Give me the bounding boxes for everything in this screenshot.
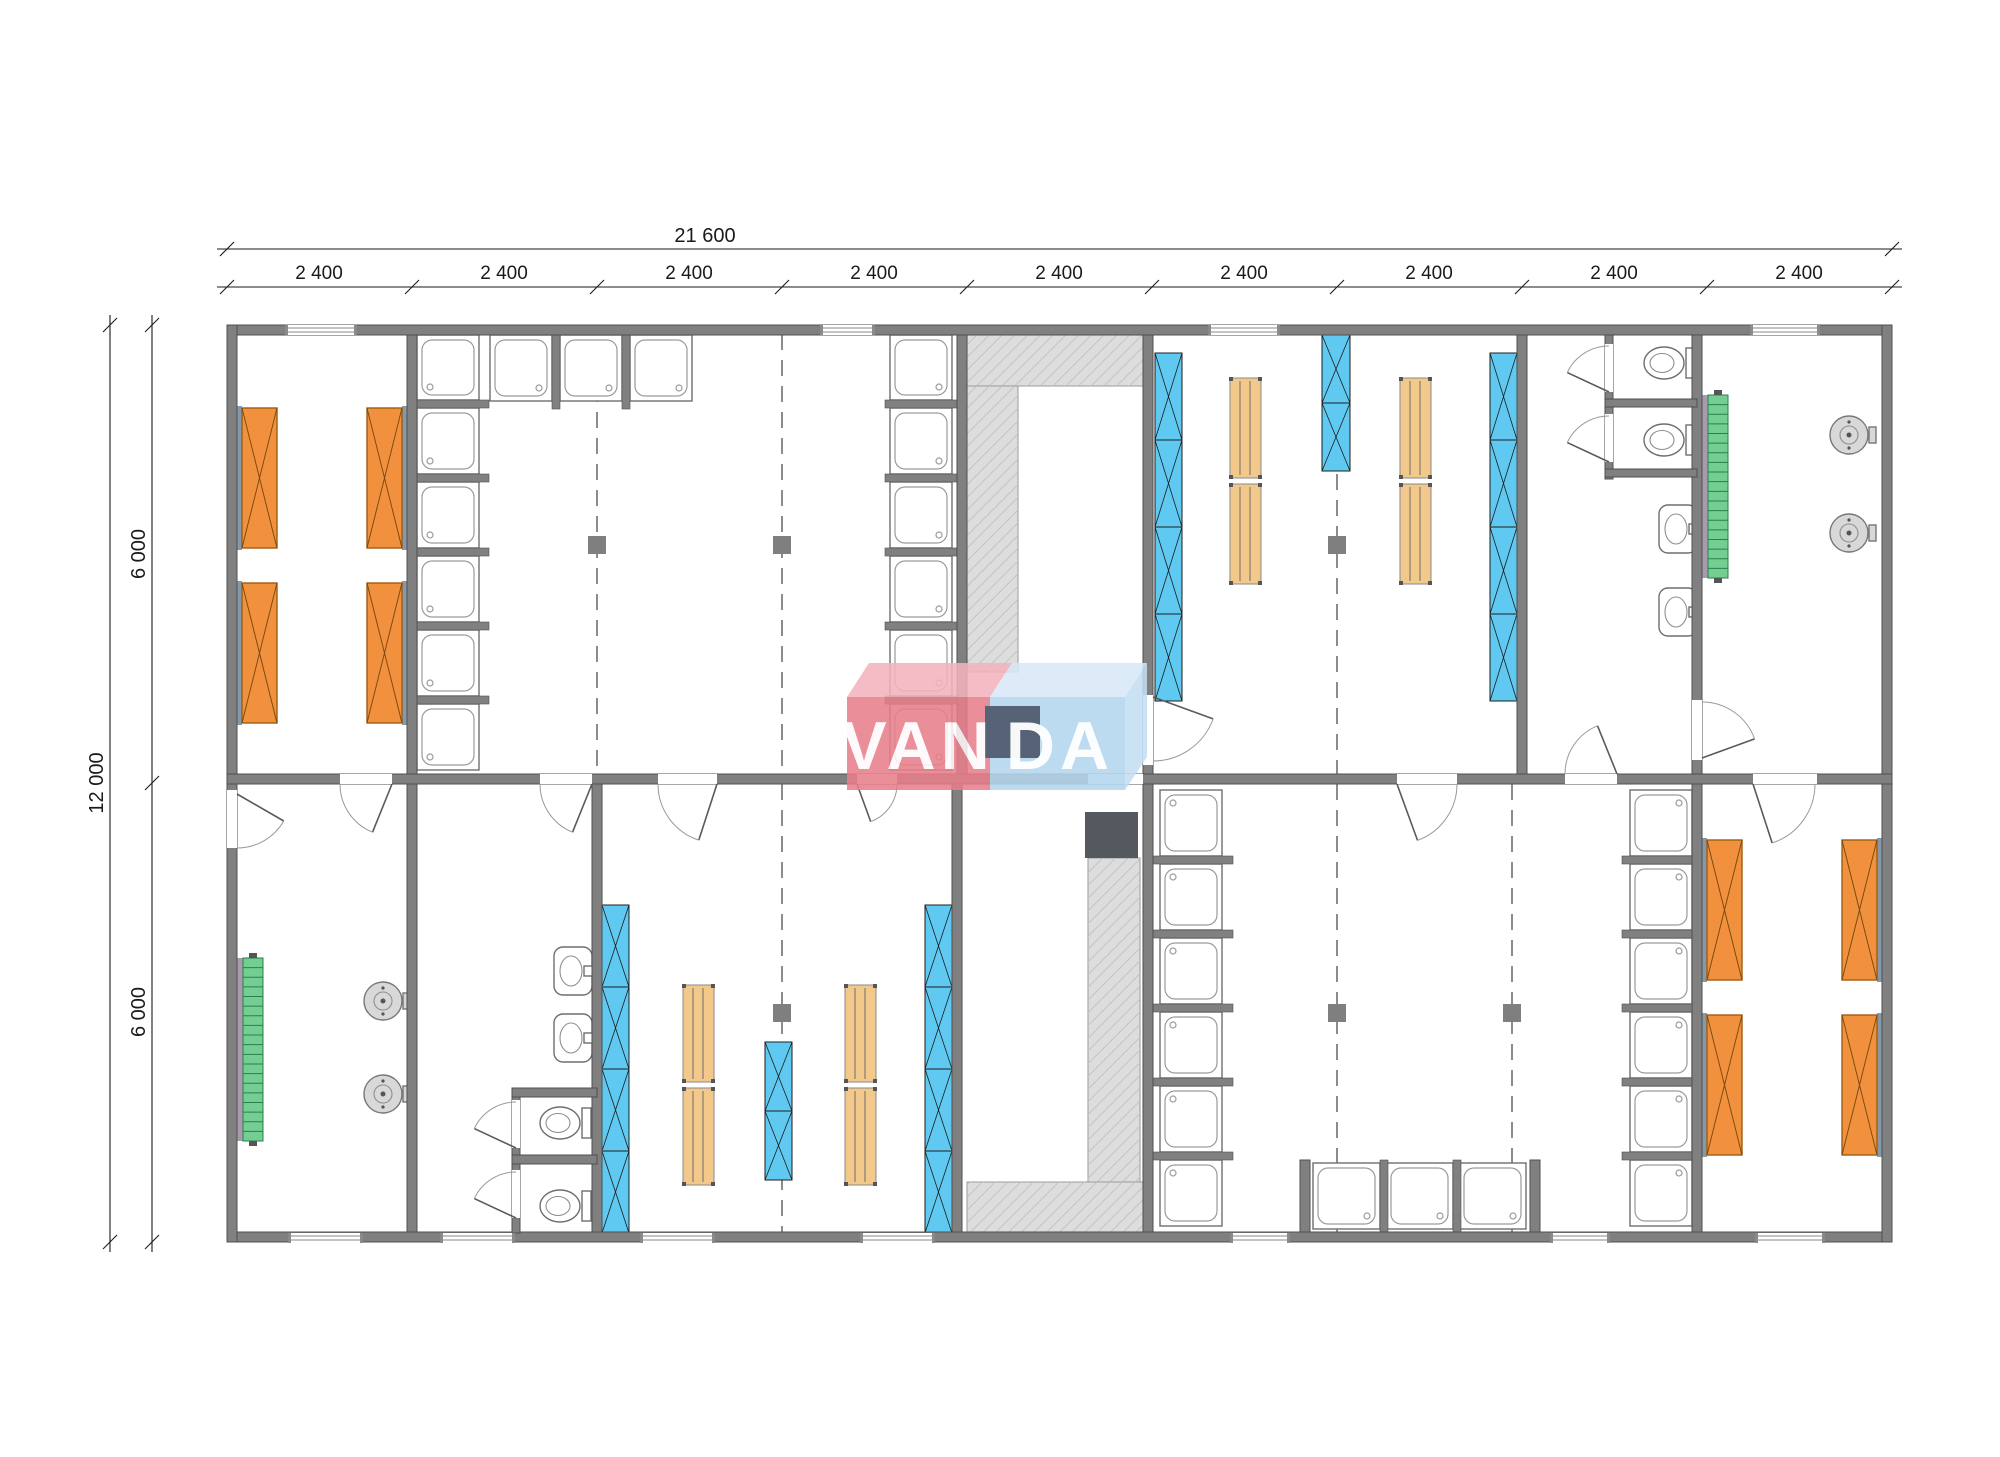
- window-icon: [288, 1233, 363, 1243]
- window-icon: [1208, 325, 1280, 335]
- window-gap: [440, 1233, 515, 1243]
- shower-stall-icon: [417, 482, 479, 548]
- wall-segment: [1605, 469, 1697, 477]
- door-icon: [474, 1172, 516, 1218]
- wall-segment: [1517, 335, 1527, 774]
- window-jamb: [1277, 325, 1280, 335]
- window-jamb: [820, 325, 823, 335]
- shower-stall-icon: [1630, 1012, 1692, 1078]
- washer-screw: [1847, 446, 1850, 449]
- shower-outline: [890, 408, 952, 474]
- toilet-icon: [540, 1190, 591, 1222]
- window-jamb: [285, 325, 288, 335]
- dimension-label: 2 400: [1220, 263, 1268, 284]
- wall-segment: [592, 784, 602, 1232]
- stall-divider: [1622, 856, 1702, 864]
- stall-divider: [1622, 930, 1702, 938]
- stall-divider: [1380, 1160, 1388, 1233]
- bench-foot: [711, 1182, 715, 1186]
- door-icon: [1397, 784, 1457, 840]
- bench-foot: [873, 1182, 877, 1186]
- door-swing-arc: [1153, 719, 1213, 761]
- dimension-label: 6 000: [128, 987, 150, 1037]
- stall-divider: [1622, 1152, 1702, 1160]
- stair-run: [1708, 395, 1728, 578]
- bench-foot: [1428, 581, 1432, 585]
- washer-screw: [381, 986, 384, 989]
- logo-text-van: VAN: [841, 708, 995, 784]
- dimension-label: 2 400: [1775, 263, 1823, 284]
- window-gap: [1208, 325, 1280, 335]
- window-icon: [860, 1233, 935, 1243]
- locker-icon: [1155, 440, 1182, 527]
- dimension-label: 6 000: [128, 529, 150, 579]
- locker-icon: [1490, 440, 1517, 527]
- shower-stall-icon: [890, 556, 952, 622]
- bench-outline: [1400, 484, 1431, 584]
- dimension-label: 12 000: [86, 752, 108, 813]
- washer-screw: [1847, 420, 1850, 423]
- shower-stall-icon: [1160, 864, 1222, 930]
- washer-center: [1847, 531, 1852, 536]
- stair-rail: [1702, 395, 1708, 578]
- column-marker: [773, 536, 791, 554]
- door-opening: [512, 1170, 520, 1218]
- shower-stall-icon: [630, 335, 692, 401]
- wall-segment: [952, 784, 962, 1232]
- toilet-icon: [1644, 347, 1695, 379]
- shower-stall-icon: [417, 408, 479, 474]
- logo-top-face-red: [847, 663, 1012, 697]
- stair-cap: [249, 1141, 257, 1146]
- shower-stall-icon: [1630, 864, 1692, 930]
- shower-outline: [890, 335, 952, 400]
- stairs-icon: [237, 953, 263, 1146]
- shower-outline: [490, 335, 552, 401]
- washer-screw: [381, 1105, 384, 1108]
- shower-outline: [1160, 1160, 1222, 1226]
- window-jamb: [860, 1233, 863, 1243]
- washer-hinge: [1869, 525, 1876, 541]
- window-icon: [1550, 1233, 1610, 1243]
- window-gap: [860, 1233, 935, 1243]
- dimension-label: 2 400: [850, 263, 898, 284]
- door-leaf: [573, 784, 592, 832]
- column-marker: [588, 536, 606, 554]
- column-marker: [1328, 1004, 1346, 1022]
- door-leaf: [1397, 784, 1418, 840]
- shower-stall-icon: [417, 556, 479, 622]
- bench-icon: [1229, 377, 1262, 479]
- window-jamb: [1817, 325, 1820, 335]
- washing-machine-icon: [364, 1075, 410, 1113]
- stairs-icon: [1702, 390, 1728, 583]
- door-opening: [1397, 774, 1457, 784]
- bench-foot: [844, 1087, 848, 1091]
- washer-screw: [381, 1079, 384, 1082]
- bench-foot: [1258, 483, 1262, 487]
- locker-icon: [1490, 353, 1517, 440]
- shower-outline: [1630, 1086, 1692, 1152]
- bench-foot: [1399, 483, 1403, 487]
- stall-divider: [885, 474, 967, 482]
- window-icon: [640, 1233, 715, 1243]
- window-jamb: [1287, 1233, 1290, 1243]
- stall-divider: [407, 622, 489, 630]
- door-opening: [512, 1100, 520, 1148]
- door-swing-arc: [658, 784, 699, 840]
- wall-segment: [1692, 784, 1702, 1232]
- shower-outline: [417, 556, 479, 622]
- bed-backing-strip: [237, 406, 242, 550]
- window-jamb: [1550, 1233, 1553, 1243]
- bed-backing-strip: [1702, 1013, 1707, 1157]
- logo-top-face-blue: [990, 663, 1147, 697]
- bench-foot: [873, 984, 877, 988]
- bench-icon: [844, 984, 877, 1083]
- corridor-hatch-pattern: [967, 1182, 1143, 1232]
- door-leaf: [1567, 373, 1609, 392]
- wall-segment: [1530, 1160, 1540, 1232]
- door-swing-arc: [474, 1172, 516, 1199]
- dimension-label: 21 600: [674, 225, 735, 247]
- door-swing-arc: [1567, 346, 1609, 373]
- door-leaf: [1753, 784, 1772, 843]
- shower-outline: [1630, 790, 1692, 856]
- washing-machine-icon: [364, 982, 410, 1020]
- bench-foot: [1428, 483, 1432, 487]
- window-jamb: [932, 1233, 935, 1243]
- window-icon: [820, 325, 875, 335]
- door-leaf: [373, 784, 392, 832]
- bench-foot: [1399, 377, 1403, 381]
- door-swing-arc: [237, 821, 284, 848]
- door-swing-arc: [1567, 416, 1609, 443]
- corridor-hatch-pattern: [967, 386, 1018, 672]
- window-jamb: [1755, 1233, 1758, 1243]
- toilet-tank: [582, 1191, 591, 1221]
- stall-divider: [622, 335, 630, 409]
- shower-outline: [1160, 790, 1222, 856]
- bench-foot: [711, 1079, 715, 1083]
- door-leaf: [474, 1129, 516, 1148]
- bench-foot: [1428, 475, 1432, 479]
- locker-icon: [1490, 527, 1517, 614]
- door-opening: [227, 790, 237, 848]
- washing-machine-icon: [1830, 416, 1876, 454]
- window-gap: [1230, 1233, 1290, 1243]
- shower-outline: [417, 335, 479, 400]
- bench-foot: [682, 1182, 686, 1186]
- bench-foot: [1229, 483, 1233, 487]
- toilet-tank: [582, 1108, 591, 1138]
- bench-foot: [711, 1087, 715, 1091]
- shower-stall-icon: [417, 630, 479, 696]
- window-jamb: [1230, 1233, 1233, 1243]
- washer-hinge: [1869, 427, 1876, 443]
- shower-outline: [1160, 1086, 1222, 1152]
- washer-screw: [381, 1012, 384, 1015]
- shower-outline: [417, 630, 479, 696]
- shower-stall-icon: [1160, 1160, 1222, 1226]
- locker-icon: [602, 1151, 629, 1233]
- locker-icon: [1155, 527, 1182, 614]
- dimension-label: 2 400: [480, 263, 528, 284]
- door-icon: [474, 1102, 516, 1148]
- column-marker: [773, 1004, 791, 1022]
- dimension-label: 2 400: [1035, 263, 1083, 284]
- floor-plan-canvas: 21 600 2 400 2 400 2 400 2 400 2 400 2 4…: [0, 0, 2000, 1457]
- dimension-label: 2 400: [1405, 263, 1453, 284]
- stall-divider: [407, 696, 489, 704]
- stall-divider: [1453, 1160, 1461, 1233]
- stall-divider: [885, 548, 967, 556]
- dimension-label: 2 400: [665, 263, 713, 284]
- wall-segment: [512, 1088, 597, 1097]
- locker-icon: [765, 1042, 792, 1111]
- shower-stall-icon: [1459, 1163, 1526, 1229]
- bench-foot: [682, 984, 686, 988]
- window-jamb: [872, 325, 875, 335]
- stall-divider: [407, 474, 489, 482]
- door-swing-arc: [1565, 726, 1598, 774]
- door-swing-arc: [1702, 702, 1755, 739]
- door-icon: [1567, 416, 1609, 462]
- shower-stall-icon: [1386, 1163, 1453, 1229]
- window-jamb: [512, 1233, 515, 1243]
- bench-icon: [682, 1087, 715, 1186]
- shower-outline: [417, 408, 479, 474]
- door-opening: [658, 774, 717, 784]
- door-swing-arc: [1418, 784, 1457, 840]
- locker-icon: [1490, 614, 1517, 701]
- bench-foot: [1258, 377, 1262, 381]
- washer-center: [1847, 433, 1852, 438]
- shower-outline: [560, 335, 622, 401]
- bench-foot: [1428, 377, 1432, 381]
- stall-divider: [1622, 1078, 1702, 1086]
- bench-foot: [711, 984, 715, 988]
- column-marker: [1328, 536, 1346, 554]
- dimension-label: 2 400: [295, 263, 343, 284]
- shower-outline: [417, 482, 479, 548]
- shower-stall-icon: [1630, 1086, 1692, 1152]
- door-swing-arc: [1772, 784, 1815, 843]
- door-leaf: [699, 784, 717, 840]
- toilet-icon: [540, 1107, 591, 1139]
- stair-rail: [237, 958, 243, 1141]
- sink-icon: [554, 1014, 593, 1062]
- door-icon: [1753, 784, 1815, 843]
- shower-stall-icon: [1313, 1163, 1380, 1229]
- bed-backing-strip: [1702, 838, 1707, 982]
- bench-icon: [1399, 377, 1432, 479]
- washer-center: [381, 1092, 386, 1097]
- shower-stall-icon: [417, 704, 479, 770]
- bench-outline: [683, 1088, 714, 1185]
- stair-cap: [1714, 390, 1722, 395]
- door-leaf: [1153, 697, 1213, 719]
- window-jamb: [360, 1233, 363, 1243]
- shower-stall-icon: [1160, 790, 1222, 856]
- bench-foot: [1258, 581, 1262, 585]
- door-leaf: [1702, 739, 1755, 758]
- wall-segment: [1143, 784, 1153, 1232]
- shower-stall-icon: [560, 335, 622, 401]
- bunk-bed-icon: [367, 583, 402, 723]
- door-opening: [1605, 344, 1613, 392]
- door-icon: [1567, 346, 1609, 392]
- bench-foot: [1229, 475, 1233, 479]
- shower-stall-icon: [417, 335, 479, 400]
- bench-foot: [1399, 581, 1403, 585]
- bunk-bed-icon: [1707, 840, 1742, 980]
- window-gap: [640, 1233, 715, 1243]
- door-icon: [1702, 702, 1755, 758]
- corridor-hatch-pattern: [967, 334, 1143, 386]
- shower-stall-icon: [1630, 938, 1692, 1004]
- locker-icon: [1322, 335, 1350, 403]
- bed-backing-strip: [237, 581, 242, 725]
- floor-plan-page: 21 600 2 400 2 400 2 400 2 400 2 400 2 4…: [0, 0, 2000, 1457]
- shower-outline: [1313, 1163, 1380, 1229]
- corridor-hatch-pattern: [1088, 858, 1140, 1182]
- locker-icon: [925, 1151, 952, 1233]
- door-opening: [340, 774, 392, 784]
- bench-foot: [844, 1182, 848, 1186]
- shower-stall-icon: [1630, 1160, 1692, 1226]
- door-opening: [1753, 774, 1817, 784]
- door-leaf: [1598, 726, 1617, 774]
- wall-segment: [1300, 1160, 1310, 1232]
- bunk-bed-icon: [1842, 1015, 1877, 1155]
- bench-outline: [1230, 484, 1261, 584]
- bed-backing-strip: [1877, 838, 1882, 982]
- bunk-bed-icon: [242, 583, 277, 723]
- bench-foot: [873, 1087, 877, 1091]
- shower-outline: [1386, 1163, 1453, 1229]
- door-leaf: [1567, 443, 1609, 462]
- bench-icon: [682, 984, 715, 1083]
- window-icon: [285, 325, 357, 335]
- stair-cap: [1714, 578, 1722, 583]
- window-gap: [288, 1233, 363, 1243]
- washer-screw: [1847, 518, 1850, 521]
- bunk-bed-icon: [242, 408, 277, 548]
- wall-segment: [512, 1155, 597, 1164]
- bench-icon: [844, 1087, 877, 1186]
- locker-icon: [925, 1069, 952, 1151]
- shower-stall-icon: [490, 335, 552, 401]
- shower-stall-icon: [1630, 790, 1692, 856]
- column-marker: [1503, 1004, 1521, 1022]
- bench-foot: [1229, 581, 1233, 585]
- bunk-bed-icon: [1707, 1015, 1742, 1155]
- stall-divider: [1153, 930, 1233, 938]
- bunk-bed-icon: [367, 408, 402, 548]
- wall-segment: [227, 325, 1892, 335]
- shower-outline: [417, 704, 479, 770]
- shower-outline: [1160, 938, 1222, 1004]
- bed-backing-strip: [1877, 1013, 1882, 1157]
- bench-foot: [1229, 377, 1233, 381]
- dark-cabinet: [1085, 812, 1138, 858]
- stair-cap: [249, 953, 257, 958]
- shower-stall-icon: [890, 335, 952, 400]
- shower-outline: [1160, 1012, 1222, 1078]
- stall-divider: [1153, 856, 1233, 864]
- window-icon: [440, 1233, 515, 1243]
- window-jamb: [354, 325, 357, 335]
- door-opening: [1605, 414, 1613, 462]
- locker-icon: [1155, 614, 1182, 701]
- bench-icon: [1229, 483, 1262, 585]
- shower-outline: [1630, 938, 1692, 1004]
- shower-stall-icon: [890, 482, 952, 548]
- window-icon: [1750, 325, 1820, 335]
- window-icon: [1230, 1233, 1290, 1243]
- shower-outline: [890, 482, 952, 548]
- bunk-bed-icon: [1842, 840, 1877, 980]
- stall-divider: [1622, 1004, 1702, 1012]
- door-swing-arc: [340, 784, 373, 832]
- door-leaf: [474, 1199, 516, 1218]
- toilet-icon: [1644, 424, 1695, 456]
- locker-icon: [925, 987, 952, 1069]
- locker-icon: [765, 1111, 792, 1180]
- bench-foot: [682, 1079, 686, 1083]
- locker-icon: [602, 905, 629, 987]
- bench-foot: [1258, 475, 1262, 479]
- door-icon: [1565, 726, 1617, 774]
- shower-stall-icon: [1160, 938, 1222, 1004]
- door-icon: [237, 794, 284, 848]
- bench-foot: [873, 1079, 877, 1083]
- stall-divider: [885, 622, 967, 630]
- door-icon: [340, 784, 392, 832]
- shower-stall-icon: [1160, 1012, 1222, 1078]
- bench-foot: [844, 1079, 848, 1083]
- door-opening: [1565, 774, 1617, 784]
- dimension-label: 2 400: [1590, 263, 1638, 284]
- door-opening: [540, 774, 592, 784]
- stair-run: [243, 958, 263, 1141]
- door-icon: [658, 784, 717, 840]
- shower-outline: [1630, 864, 1692, 930]
- bed-backing-strip: [402, 581, 407, 725]
- door-opening: [1692, 700, 1702, 760]
- shower-outline: [890, 556, 952, 622]
- bed-backing-strip: [402, 406, 407, 550]
- door-icon: [540, 784, 592, 832]
- stall-divider: [885, 400, 967, 408]
- locker-icon: [1322, 403, 1350, 471]
- window-gap: [1755, 1233, 1825, 1243]
- window-jamb: [440, 1233, 443, 1243]
- door-swing-arc: [474, 1102, 516, 1129]
- locker-icon: [602, 1069, 629, 1151]
- shower-outline: [1160, 864, 1222, 930]
- bench-outline: [845, 985, 876, 1082]
- wall-segment: [407, 784, 417, 1232]
- bench-icon: [1399, 483, 1432, 585]
- bench-outline: [1230, 378, 1261, 478]
- shower-outline: [630, 335, 692, 401]
- stall-divider: [1153, 1078, 1233, 1086]
- washer-center: [381, 999, 386, 1004]
- locker-icon: [602, 987, 629, 1069]
- bench-outline: [683, 985, 714, 1082]
